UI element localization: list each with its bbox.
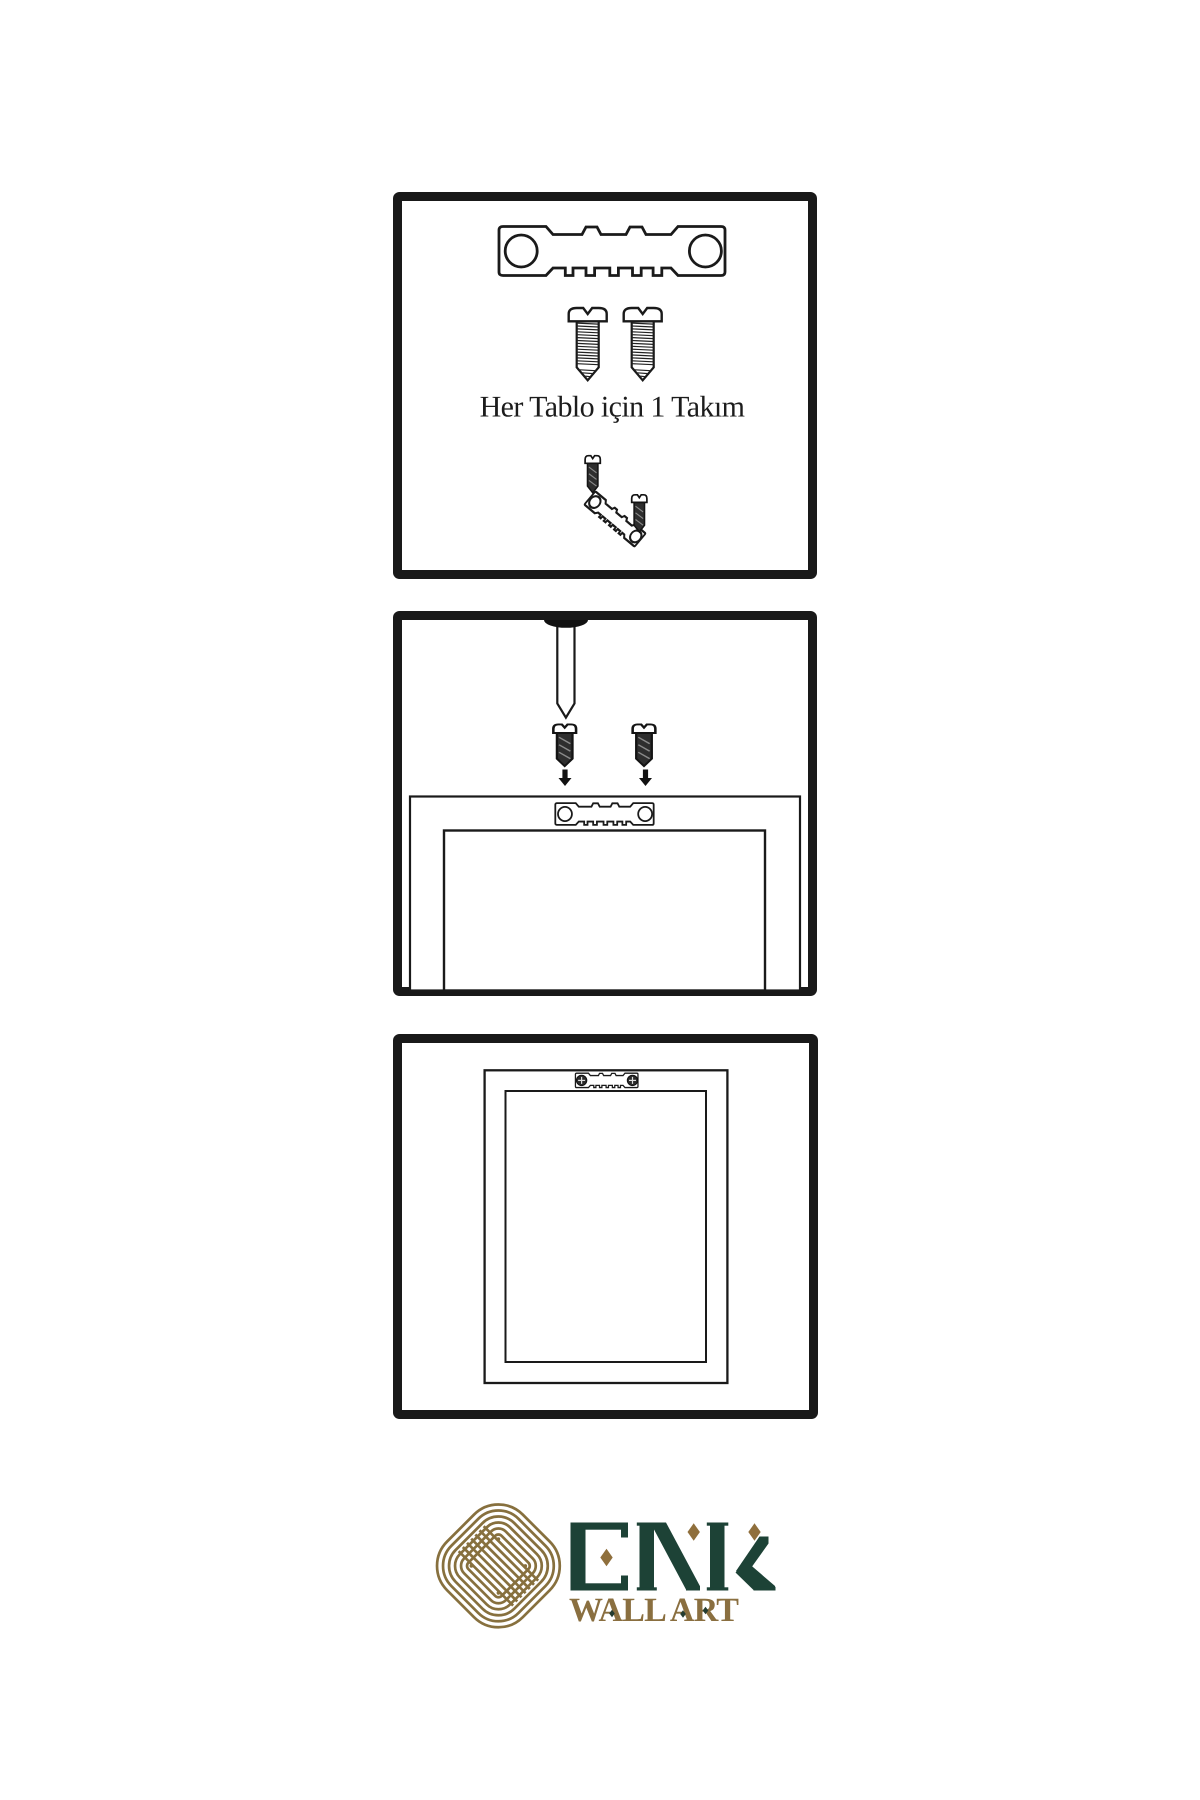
svg-text:Her Tablo için 1 Takım: Her Tablo için 1 Takım: [480, 391, 745, 424]
svg-text:WALL ART: WALL ART: [569, 1592, 739, 1629]
